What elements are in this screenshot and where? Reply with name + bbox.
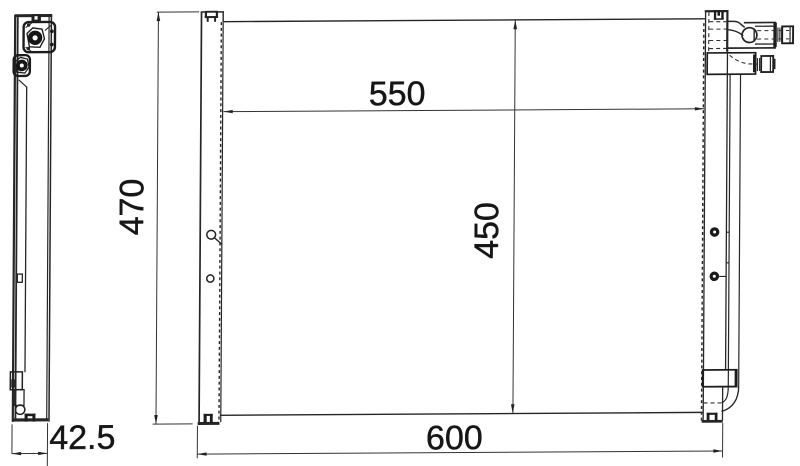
svg-text:600: 600	[426, 419, 483, 457]
svg-text:470: 470	[113, 179, 151, 236]
svg-text:42.5: 42.5	[49, 419, 115, 457]
svg-text:450: 450	[468, 202, 506, 259]
svg-text:550: 550	[369, 75, 426, 113]
